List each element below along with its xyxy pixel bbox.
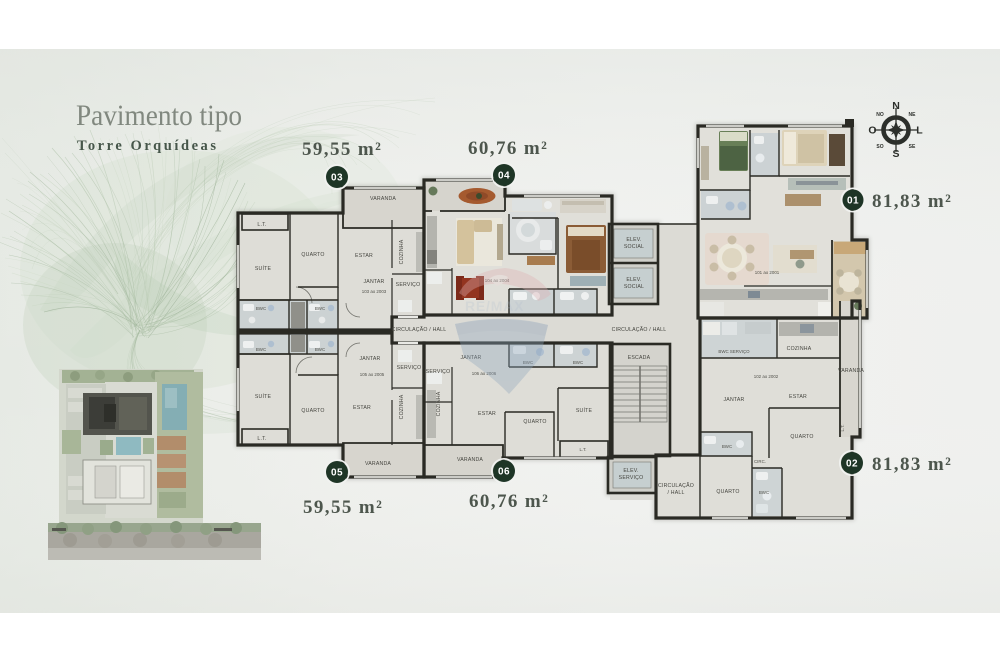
svg-text:SERVIÇO: SERVIÇO — [397, 365, 422, 371]
svg-text:05: 05 — [331, 468, 343, 479]
svg-text:QUARTO: QUARTO — [301, 408, 324, 414]
svg-text:RE/MAX: RE/MAX — [465, 298, 524, 314]
svg-text:BWC: BWC — [759, 490, 769, 495]
svg-text:VARANDA: VARANDA — [838, 368, 864, 374]
svg-text:BWC: BWC — [315, 347, 325, 352]
svg-text:L: L — [916, 125, 923, 137]
svg-text:SE: SE — [909, 144, 916, 150]
svg-text:QUARTO: QUARTO — [716, 489, 739, 495]
svg-text:VARANDA: VARANDA — [365, 461, 391, 467]
svg-text:JANTAR: JANTAR — [364, 279, 385, 285]
svg-text:Pavimento tipo: Pavimento tipo — [76, 99, 242, 132]
svg-text:SUÍTE: SUÍTE — [576, 407, 593, 414]
svg-text:ELEV.: ELEV. — [626, 237, 641, 243]
svg-text:SOCIAL: SOCIAL — [624, 284, 644, 290]
svg-text:/ HALL: / HALL — [667, 490, 684, 496]
svg-text:04: 04 — [498, 171, 510, 182]
svg-text:ESCADA: ESCADA — [628, 355, 651, 361]
svg-text:L.T.: L.T. — [257, 222, 266, 228]
svg-text:BWC SERVIÇO: BWC SERVIÇO — [718, 349, 750, 354]
svg-text:60,76 m²: 60,76 m² — [468, 138, 548, 159]
svg-text:SUÍTE: SUÍTE — [255, 265, 272, 272]
svg-text:01: 01 — [847, 196, 859, 207]
svg-text:ESTAR: ESTAR — [789, 394, 807, 400]
svg-text:BWC: BWC — [573, 360, 583, 365]
svg-text:BWC: BWC — [256, 347, 266, 352]
svg-text:NO: NO — [876, 112, 884, 118]
svg-text:N: N — [892, 100, 900, 112]
svg-text:BWC: BWC — [315, 306, 325, 311]
svg-text:CIRC.: CIRC. — [754, 459, 766, 464]
svg-text:59,55 m²: 59,55 m² — [303, 497, 383, 518]
svg-text:QUARTO: QUARTO — [301, 252, 324, 258]
svg-text:ELEV.: ELEV. — [626, 277, 641, 283]
svg-text:101 ao 2001: 101 ao 2001 — [755, 270, 780, 275]
svg-text:S: S — [892, 148, 899, 160]
svg-text:BWC: BWC — [256, 306, 266, 311]
svg-text:102 ao 2002: 102 ao 2002 — [754, 374, 779, 379]
svg-text:COZINHA: COZINHA — [436, 391, 442, 416]
svg-text:VARANDA: VARANDA — [370, 196, 396, 202]
svg-text:O: O — [868, 125, 876, 137]
svg-text:81,83 m²: 81,83 m² — [872, 454, 952, 475]
svg-text:SERVIÇO: SERVIÇO — [619, 475, 644, 481]
svg-text:81,83 m²: 81,83 m² — [872, 191, 952, 212]
svg-text:SERVIÇO: SERVIÇO — [426, 369, 451, 375]
svg-text:02: 02 — [846, 459, 858, 470]
svg-text:QUARTO: QUARTO — [523, 419, 546, 425]
svg-text:105 ao 2005: 105 ao 2005 — [360, 372, 385, 377]
svg-text:CIRCULAÇÃO: CIRCULAÇÃO — [658, 482, 694, 489]
svg-text:BWC: BWC — [722, 444, 732, 449]
svg-text:NE: NE — [909, 112, 917, 118]
svg-text:L.T.: L.T. — [257, 436, 266, 442]
svg-text:03: 03 — [331, 173, 343, 184]
svg-text:CIRCULAÇÃO / HALL: CIRCULAÇÃO / HALL — [612, 326, 667, 333]
svg-text:CIRCULAÇÃO / HALL: CIRCULAÇÃO / HALL — [392, 326, 447, 333]
svg-text:L.T.: L.T. — [840, 424, 845, 431]
svg-text:Torre Orquídeas: Torre Orquídeas — [77, 138, 216, 154]
svg-text:06: 06 — [498, 467, 510, 478]
svg-text:COZINHA: COZINHA — [399, 394, 405, 419]
svg-text:QUARTO: QUARTO — [790, 434, 813, 440]
svg-text:SO: SO — [876, 144, 883, 150]
svg-text:ESTAR: ESTAR — [478, 411, 496, 417]
svg-text:L.T.: L.T. — [579, 447, 586, 452]
svg-text:COZINHA: COZINHA — [787, 346, 812, 352]
svg-text:JANTAR: JANTAR — [724, 397, 745, 403]
svg-text:SERVIÇO: SERVIÇO — [396, 282, 421, 288]
svg-text:103 ao 2003: 103 ao 2003 — [362, 289, 387, 294]
svg-text:SOCIAL: SOCIAL — [624, 244, 644, 250]
svg-text:VARANDA: VARANDA — [457, 457, 483, 463]
svg-text:ESTAR: ESTAR — [353, 405, 371, 411]
svg-text:ELEV.: ELEV. — [623, 468, 638, 474]
svg-text:JANTAR: JANTAR — [360, 356, 381, 362]
svg-text:ESTAR: ESTAR — [355, 253, 373, 259]
svg-text:COZINHA: COZINHA — [399, 239, 405, 264]
svg-text:SUÍTE: SUÍTE — [255, 393, 272, 400]
svg-text:59,55 m²: 59,55 m² — [302, 139, 382, 160]
svg-text:60,76 m²: 60,76 m² — [469, 491, 549, 512]
